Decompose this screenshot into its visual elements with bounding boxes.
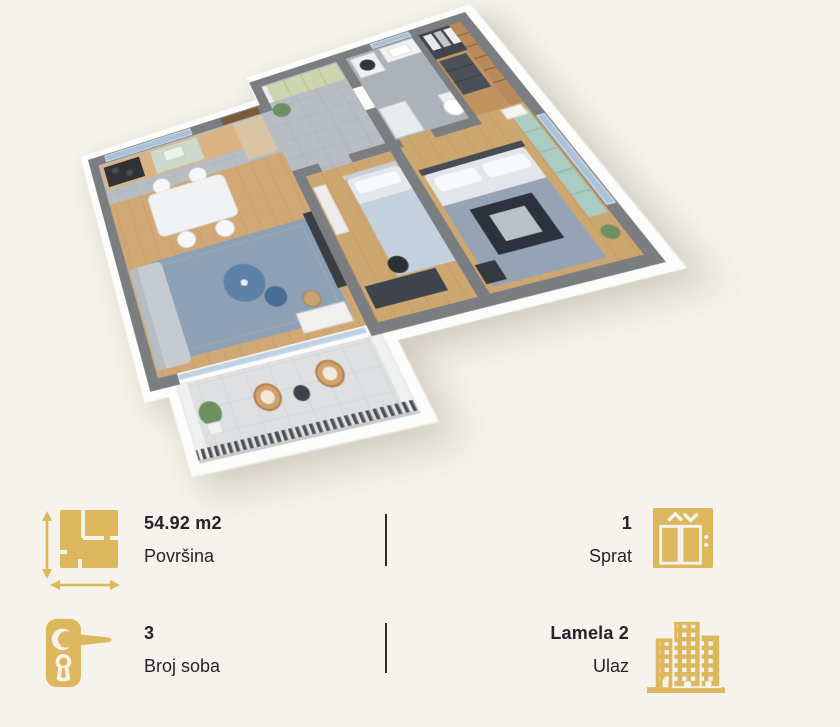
entrance-label: Ulaz <box>550 655 629 677</box>
floorplan-drawing <box>82 12 730 469</box>
building-icon <box>647 614 725 696</box>
info-floor: 1 Sprat <box>420 504 714 570</box>
info-rooms: 3 Broj soba <box>40 616 220 690</box>
door-handle-icon <box>40 616 118 690</box>
entrance-value: Lamela 2 <box>550 622 629 644</box>
rooms-label: Broj soba <box>144 655 220 677</box>
divider-row2 <box>385 623 387 673</box>
divider-row1 <box>385 514 387 566</box>
floor-value: 1 <box>589 512 632 534</box>
apartment-3d-floorplan <box>82 12 730 469</box>
rooms-value: 3 <box>144 622 220 644</box>
elevator-icon <box>652 504 714 570</box>
area-label: Površina <box>144 545 222 567</box>
area-value: 54.92 m2 <box>144 512 222 534</box>
floor-label: Sprat <box>589 545 632 567</box>
floorplan-dimensions-icon <box>38 504 120 592</box>
info-entrance: Lamela 2 Ulaz <box>420 614 725 696</box>
info-area: 54.92 m2 Površina <box>38 504 222 592</box>
